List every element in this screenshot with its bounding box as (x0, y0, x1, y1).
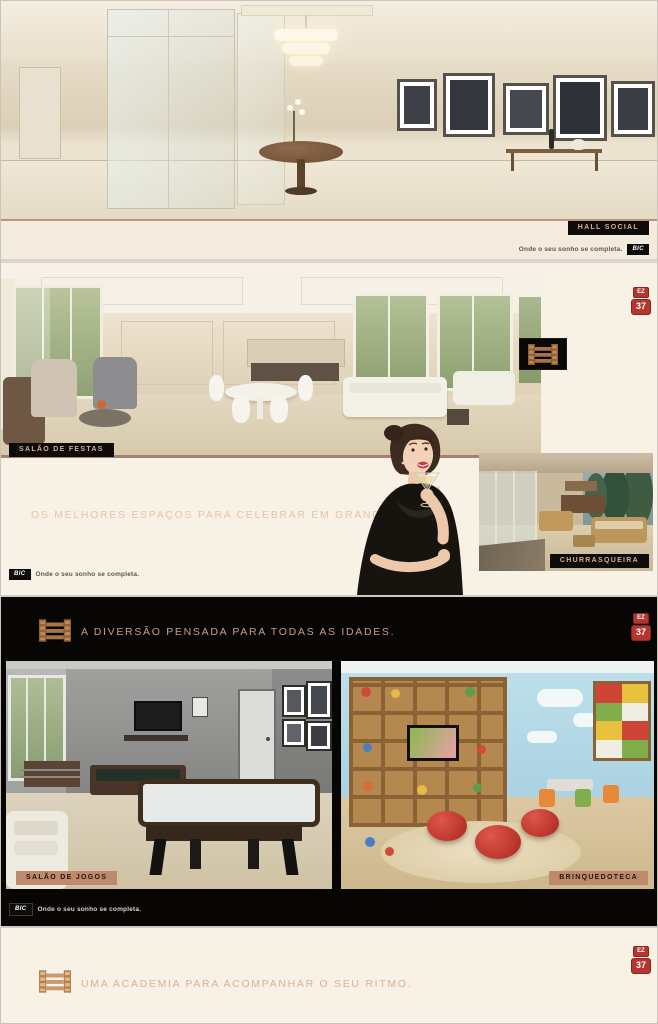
orchid-bloom (287, 105, 293, 111)
table-pedestal (297, 159, 305, 189)
air-hockey-body (146, 825, 302, 841)
window-pane (622, 740, 648, 759)
tv (407, 725, 459, 761)
ez-badge-bottom: 37 (631, 958, 651, 974)
bic-logo: BIC (9, 569, 31, 580)
picture-frame (306, 721, 332, 751)
door (238, 689, 276, 789)
chandelier-tier (282, 43, 330, 54)
picture-frame (443, 73, 495, 137)
toy (385, 847, 394, 856)
air-hockey-top (138, 779, 320, 827)
dining-chair (270, 395, 288, 423)
brochure-page: HALL SOCIAL Onde o seu sonho se completa… (0, 0, 658, 1024)
woman-photo (339, 417, 479, 595)
picture-frame (503, 83, 549, 135)
foosball-rod (20, 776, 84, 778)
glass-mullion (513, 471, 515, 545)
ez37-seal-icon: EZ 37 (631, 946, 651, 974)
ez-badge-top: EZ (633, 613, 649, 624)
dining-chair (298, 375, 313, 401)
chandelier-tier (289, 56, 323, 66)
ez-badge-bottom: 37 (631, 625, 651, 641)
toy (391, 689, 400, 698)
floor (1, 161, 657, 219)
wing-chair (31, 359, 77, 417)
frame-photo (311, 726, 327, 746)
toy (365, 837, 375, 847)
hall-social-label: HALL SOCIAL (568, 221, 649, 235)
brinquedoteca-label: BRINQUEDOTECA (549, 871, 648, 885)
console-leg (595, 153, 598, 171)
foosball-rod (20, 769, 84, 771)
brinquedoteca-render: BRINQUEDOTECA (341, 661, 654, 889)
hall-social-render (1, 1, 657, 221)
foosball-table (24, 761, 80, 787)
section-salao-festas: SALÃO DE FESTAS EZ 37 OS MELHORES ESPAÇO… (1, 263, 657, 595)
glass-wall (479, 471, 537, 545)
kitchen-island (251, 363, 339, 381)
air-hockey-table (138, 779, 310, 875)
sofa-cushion (14, 841, 58, 855)
toy (473, 783, 482, 792)
cloud-decor (527, 731, 557, 743)
churrasqueira-render: CHURRASQUEIRA (479, 453, 653, 571)
chandelier-tier (274, 29, 338, 41)
toy (363, 781, 373, 791)
glass-transom (108, 36, 234, 37)
section-hall-social: HALL SOCIAL Onde o seu sonho se completa… (1, 1, 657, 259)
brand-icon-box (519, 338, 567, 370)
slogan-text: Onde o seu sonho se completa. (519, 246, 623, 253)
red-pouf (475, 825, 521, 859)
window-pane (622, 684, 648, 703)
tv (134, 701, 182, 731)
window-mullion (388, 296, 390, 388)
picture-frame (553, 75, 607, 141)
window-pane (622, 721, 648, 740)
tv-screen (410, 728, 456, 758)
dining-chair (209, 375, 224, 401)
window-pane (596, 721, 622, 740)
toy (417, 785, 427, 795)
toy-shelf (349, 677, 507, 827)
section-academia: EZ 37 UMA ACADEMIA PARA ACOMPANHAR O SEU… (1, 926, 657, 1024)
table-base (285, 187, 317, 195)
sofa (453, 371, 515, 405)
toy (477, 745, 486, 754)
dining-chair (232, 395, 250, 423)
foreground-ledge (479, 539, 545, 571)
sofa-cushions (595, 521, 643, 529)
diversao-headline: A DIVERSÃO PENSADA PARA TODAS AS IDADES. (81, 626, 395, 638)
frame-photo (450, 80, 488, 130)
chandelier (269, 15, 343, 81)
decor-bottle (549, 129, 554, 149)
cloud-decor (537, 689, 583, 707)
frame-photo (287, 690, 301, 712)
window-pane (596, 703, 622, 722)
academia-headline: UMA ACADEMIA PARA ACOMPANHAR O SEU RITMO… (81, 978, 412, 990)
window-pane (596, 684, 622, 703)
ladder-monogram-icon (39, 619, 71, 642)
ez37-seal-icon: EZ 37 (631, 613, 651, 641)
media-shelf (124, 735, 188, 741)
chandelier-cord (305, 15, 307, 29)
ladder-monogram-icon (39, 970, 71, 993)
glass-mullion (168, 10, 169, 208)
pouf-table (573, 535, 595, 547)
slogan-text: Onde o seu sonho se completa. (36, 571, 140, 578)
ez37-seal-icon: EZ 37 (631, 287, 651, 315)
coffee-table (79, 409, 131, 427)
section-diversao: A DIVERSÃO PENSADA PARA TODAS AS IDADES.… (1, 595, 657, 928)
picture-frame (306, 681, 332, 719)
slogan-row: BIC Onde o seu sonho se completa. (9, 903, 141, 916)
wicker-chair (539, 511, 573, 531)
frame-photo (287, 724, 301, 742)
decor-vase (571, 139, 586, 150)
bic-logo: BIC (627, 244, 649, 255)
dining-table-pedestal (257, 397, 263, 419)
ez-badge-bottom: 37 (631, 299, 651, 315)
ez-badge-top: EZ (633, 946, 649, 957)
picture-frame (282, 685, 306, 717)
door-handle (266, 737, 270, 741)
churrasqueira-label: CHURRASQUEIRA (550, 554, 649, 568)
ceiling (341, 661, 654, 673)
sofa (343, 377, 447, 417)
kids-chair (539, 789, 555, 807)
orchid-bloom (299, 109, 305, 115)
orchid-bloom (295, 99, 301, 105)
glass-mullion (495, 471, 497, 545)
colorful-window (593, 681, 651, 761)
red-pouf (521, 809, 559, 837)
table-leg (149, 839, 166, 875)
bar-shelf (565, 481, 597, 491)
frame-photo (560, 82, 600, 134)
table-leg (190, 839, 201, 869)
wicker-sofa (591, 517, 647, 543)
ceiling (479, 453, 653, 473)
salao-jogos-label: SALÃO DE JOGOS (16, 871, 117, 885)
slogan-row: BIC Onde o seu sonho se completa. (9, 569, 139, 580)
orchid-stem (293, 111, 295, 145)
salao-jogos-render: SALÃO DE JOGOS (6, 661, 332, 889)
table-leg (281, 839, 298, 875)
slogan-row: Onde o seu sonho se completa. BIC (519, 244, 649, 255)
slogan-text: Onde o seu sonho se completa. (38, 906, 142, 913)
toy (361, 687, 371, 697)
window-pane (622, 703, 648, 722)
frame-photo (311, 686, 327, 714)
frame-photo (510, 90, 542, 128)
toy (465, 687, 475, 697)
window-pane (596, 740, 622, 759)
glass-partition (107, 9, 235, 209)
frame-photo (618, 88, 648, 130)
console-table (506, 149, 602, 153)
kids-chair (575, 789, 591, 807)
picture-frame (192, 697, 208, 717)
toy (363, 743, 372, 752)
bic-logo: BIC (9, 903, 33, 916)
sofa-cushion (14, 821, 58, 835)
picture-frame (282, 719, 306, 747)
ladder-monogram-icon (528, 344, 558, 365)
kids-chair (603, 785, 619, 803)
sofa-cushions (349, 383, 441, 393)
flower-decor (97, 400, 106, 409)
picture-frame (397, 79, 437, 131)
doorway (19, 67, 61, 159)
salao-festas-label: SALÃO DE FESTAS (9, 443, 114, 457)
picture-frame (611, 81, 655, 137)
ez-badge-top: EZ (633, 287, 649, 298)
table-leg (248, 839, 259, 869)
console-leg (511, 153, 514, 171)
red-pouf (427, 811, 467, 841)
frame-photo (404, 86, 430, 124)
